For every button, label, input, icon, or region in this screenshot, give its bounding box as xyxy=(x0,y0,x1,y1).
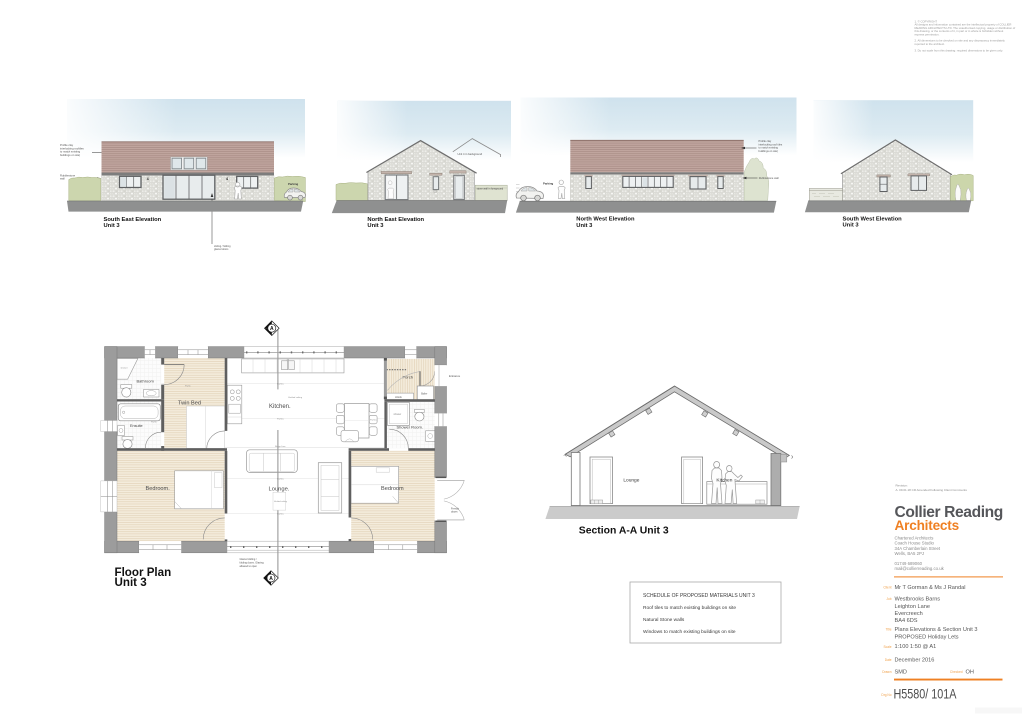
svg-text:Boiler: Boiler xyxy=(421,392,427,395)
svg-text:buildings on site): buildings on site) xyxy=(60,153,80,157)
svg-text:Revision:: Revision: xyxy=(896,484,909,488)
svg-text:Job: Job xyxy=(886,597,891,601)
svg-text:Evercreech: Evercreech xyxy=(895,611,923,617)
svg-text:Natural Stone walls: Natural Stone walls xyxy=(643,617,685,623)
svg-text:stone wall in foreground: stone wall in foreground xyxy=(477,187,504,190)
svg-text:H5580/ 101A: H5580/ 101A xyxy=(894,686,958,701)
svg-text:buildings on site): buildings on site) xyxy=(759,149,779,153)
svg-text:Scale: Scale xyxy=(884,645,892,649)
svg-text:Parking: Parking xyxy=(288,182,299,186)
svg-text:SMD: SMD xyxy=(895,670,907,676)
svg-text:Lounge.: Lounge. xyxy=(269,486,290,492)
svg-text:North West Elevation: North West Elevation xyxy=(576,217,635,223)
svg-text:mail@collierreading.co.uk: mail@collierreading.co.uk xyxy=(895,566,945,571)
svg-text:Leighton Lane: Leighton Lane xyxy=(895,604,930,610)
svg-text:December 2016: December 2016 xyxy=(895,658,935,664)
svg-text:1:100 1:50 @ A1: 1:100 1:50 @ A1 xyxy=(895,644,937,650)
svg-text:South East Elevation: South East Elevation xyxy=(104,217,162,223)
svg-text:Plans Elevations & Section Uni: Plans Elevations & Section Unit 3 xyxy=(895,627,978,633)
svg-text:3. Do not scale from this draw: 3. Do not scale from this drawing: requi… xyxy=(915,48,1004,52)
svg-text:Kitchen.: Kitchen. xyxy=(269,404,291,410)
svg-text:Unit 4 in background: Unit 4 in background xyxy=(458,152,483,156)
svg-text:Ridge Line: Ridge Line xyxy=(275,446,286,448)
svg-text:A: A xyxy=(270,326,274,332)
svg-text:shower: shower xyxy=(121,367,128,370)
svg-text:Unit 3: Unit 3 xyxy=(367,223,384,229)
svg-text:South West Elevation: South West Elevation xyxy=(843,216,903,222)
svg-text:Rubblestone wall: Rubblestone wall xyxy=(759,176,779,180)
svg-text:PROPOSED Holiday Lets: PROPOSED Holiday Lets xyxy=(895,634,959,640)
svg-text:Kitchen: Kitchen xyxy=(716,478,732,484)
svg-text:reported to the architect.: reported to the architect. xyxy=(915,42,946,46)
svg-text:Unit 3: Unit 3 xyxy=(576,223,593,229)
svg-text:wall: wall xyxy=(60,177,65,181)
svg-text:Entrance: Entrance xyxy=(449,374,461,378)
svg-text:Purlin: Purlin xyxy=(151,421,157,424)
svg-text:Westbrooks Barns: Westbrooks Barns xyxy=(895,597,941,603)
svg-text:SCHEDULE OF PROPOSED MATERIALS: SCHEDULE OF PROPOSED MATERIALS UNIT 3 xyxy=(643,593,755,599)
svg-text:Title: Title xyxy=(886,627,892,631)
svg-text:Checked: Checked xyxy=(950,670,963,674)
svg-text:Bedroom.: Bedroom. xyxy=(146,486,171,492)
svg-text:4: 4 xyxy=(147,177,149,181)
svg-text:Bathroom: Bathroom xyxy=(137,379,155,384)
svg-text:cl/wds: cl/wds xyxy=(395,396,402,399)
svg-text:shower: shower xyxy=(394,413,402,416)
svg-text:doors: doors xyxy=(451,510,458,514)
svg-text:Ensuite: Ensuite xyxy=(130,424,143,428)
svg-text:Vaulted ceiling: Vaulted ceiling xyxy=(274,500,287,503)
svg-text:OH: OH xyxy=(966,670,974,676)
svg-text:Twin Bed: Twin Bed xyxy=(178,401,201,407)
svg-text:allowed to open: allowed to open xyxy=(240,565,258,568)
svg-text:Roof tiles to match existing b: Roof tiles to match existing buildings o… xyxy=(643,605,736,611)
svg-text:4: 4 xyxy=(226,177,228,181)
svg-text:Vaulted ceiling: Vaulted ceiling xyxy=(288,396,303,399)
svg-text:Unit 3: Unit 3 xyxy=(115,576,148,589)
svg-text:Purlins: Purlins xyxy=(370,419,378,422)
svg-text:Mr T Gorman & Ms J Randal: Mr T Gorman & Ms J Randal xyxy=(895,585,966,591)
svg-text:Purlin: Purlin xyxy=(185,385,191,388)
svg-text:A: A xyxy=(269,576,273,582)
svg-text:Parking: Parking xyxy=(543,182,554,186)
svg-text:A. 09.01.18 CR Amended Followi: A. 09.01.18 CR Amended Following Client … xyxy=(896,488,968,492)
svg-text:Drawn: Drawn xyxy=(882,670,891,674)
svg-text:express permission.: express permission. xyxy=(915,32,940,36)
svg-text:Unit 3: Unit 3 xyxy=(104,223,121,229)
svg-text:Lounge: Lounge xyxy=(623,478,639,484)
svg-text:Bedroom: Bedroom xyxy=(381,486,404,492)
svg-text:BA4 6DS: BA4 6DS xyxy=(895,618,918,624)
svg-text:Windows to match existing buil: Windows to match existing buildings on s… xyxy=(643,629,736,635)
svg-text:Unit 3: Unit 3 xyxy=(843,223,860,229)
svg-text:Wells, BA5 2PJ: Wells, BA5 2PJ xyxy=(895,551,925,556)
svg-text:Drg No: Drg No xyxy=(881,693,891,697)
svg-text:glazed doors: glazed doors xyxy=(214,248,229,251)
svg-text:Purlins: Purlins xyxy=(277,418,285,421)
svg-text:Architects: Architects xyxy=(895,518,959,533)
svg-text:Client: Client xyxy=(883,586,891,590)
svg-text:Section A-A Unit 3: Section A-A Unit 3 xyxy=(579,526,669,537)
svg-text:Shower Room.: Shower Room. xyxy=(397,424,423,429)
svg-text:North East Elevation: North East Elevation xyxy=(367,217,424,223)
svg-text:Date: Date xyxy=(885,658,892,662)
